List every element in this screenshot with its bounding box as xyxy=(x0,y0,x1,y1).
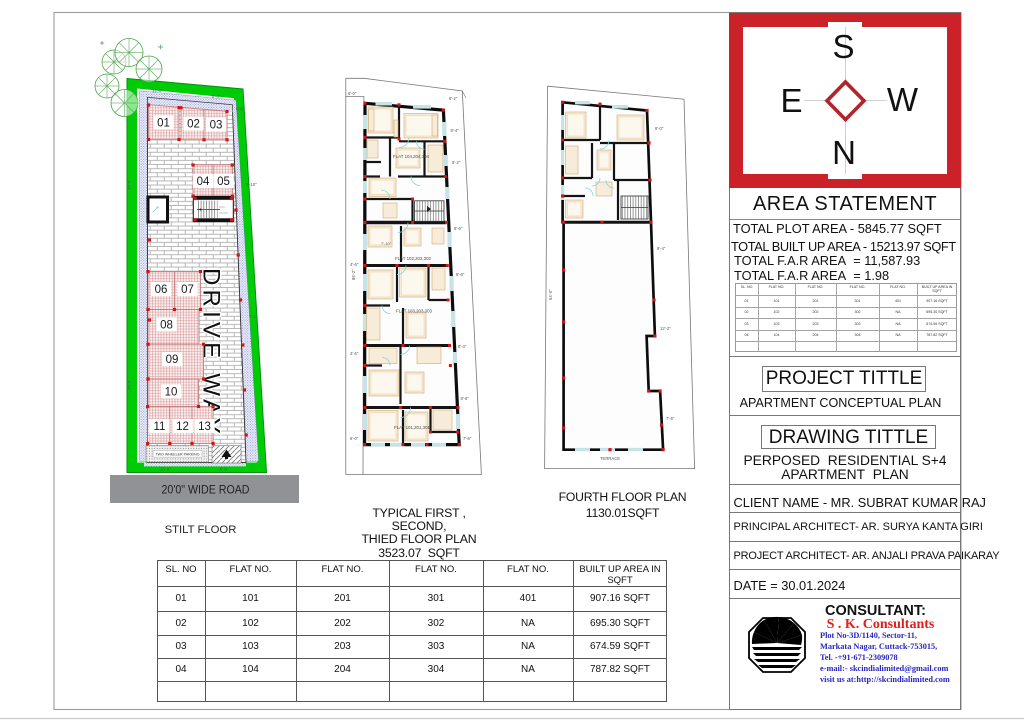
svg-text:13: 13 xyxy=(198,421,211,433)
svg-text:05: 05 xyxy=(217,176,230,188)
svg-text:TERRACE: TERRACE xyxy=(600,456,620,461)
svg-text:8'-4": 8'-4" xyxy=(458,344,467,349)
svg-text:4'-6": 4'-6" xyxy=(350,262,359,267)
svg-text:8'-6": 8'-6" xyxy=(456,272,465,277)
svg-text:8'-4": 8'-4" xyxy=(451,128,460,133)
svg-text:14'-0": 14'-0" xyxy=(152,88,163,93)
svg-text:5'-10": 5'-10" xyxy=(246,182,257,187)
svg-text:6'-0": 6'-0" xyxy=(348,91,357,96)
svg-text:06: 06 xyxy=(155,284,168,296)
svg-text:8'-2": 8'-2" xyxy=(449,96,458,101)
svg-text:4'-6": 4'-6" xyxy=(350,351,359,356)
svg-text:FLAT 104,204,304: FLAT 104,204,304 xyxy=(393,154,430,159)
svg-text:8'-4": 8'-4" xyxy=(212,94,221,99)
svg-text:TWO WHEELER PARKING: TWO WHEELER PARKING xyxy=(155,453,199,457)
svg-text:03: 03 xyxy=(210,120,223,132)
svg-text:8'-6": 8'-6" xyxy=(454,226,463,231)
svg-text:08: 08 xyxy=(160,320,173,332)
svg-text:7'-6": 7'-6" xyxy=(666,416,675,421)
svg-text:E: E xyxy=(780,82,802,119)
svg-text:9'-4": 9'-4" xyxy=(657,246,666,251)
svg-text:FLAT 102,202,302: FLAT 102,202,302 xyxy=(395,256,432,261)
svg-text:20'0" WIDE ROAD: 20'0" WIDE ROAD xyxy=(162,483,250,497)
svg-text:FLAT 101,201,301: FLAT 101,201,301 xyxy=(394,425,431,430)
svg-text:7'-6": 7'-6" xyxy=(463,436,472,441)
svg-text:07: 07 xyxy=(181,284,194,296)
svg-text:FLAT 103,203,303: FLAT 103,203,303 xyxy=(396,309,433,314)
svg-text:16'-0": 16'-0" xyxy=(160,467,171,472)
svg-text:6'-0": 6'-0" xyxy=(350,436,359,441)
svg-text:8'-2": 8'-2" xyxy=(452,160,461,165)
svg-text:6'-6": 6'-6" xyxy=(236,107,245,112)
svg-text:01: 01 xyxy=(157,118,170,130)
svg-text:09: 09 xyxy=(166,354,179,366)
svg-text:86'-2": 86'-2" xyxy=(351,269,356,280)
svg-text:8'-0": 8'-0" xyxy=(655,126,664,131)
svg-text:S: S xyxy=(832,28,854,65)
svg-text:9'-6": 9'-6" xyxy=(220,467,229,472)
svg-text:59'-0": 59'-0" xyxy=(126,179,131,190)
svg-text:W: W xyxy=(887,81,919,118)
svg-text:8'-6": 8'-6" xyxy=(461,396,470,401)
svg-text:11: 11 xyxy=(154,421,166,433)
svg-text:04: 04 xyxy=(197,176,210,188)
svg-text:7'-2": 7'-2" xyxy=(249,314,258,319)
svg-text:7'-10": 7'-10" xyxy=(381,241,392,246)
svg-text:10: 10 xyxy=(165,387,178,399)
svg-text:36'-6": 36'-6" xyxy=(126,379,131,390)
svg-text:12: 12 xyxy=(176,421,189,433)
svg-text:12'-2": 12'-2" xyxy=(660,326,671,331)
svg-text:64'-0": 64'-0" xyxy=(548,289,553,300)
svg-text:N: N xyxy=(832,134,856,171)
svg-text:02: 02 xyxy=(187,119,200,131)
